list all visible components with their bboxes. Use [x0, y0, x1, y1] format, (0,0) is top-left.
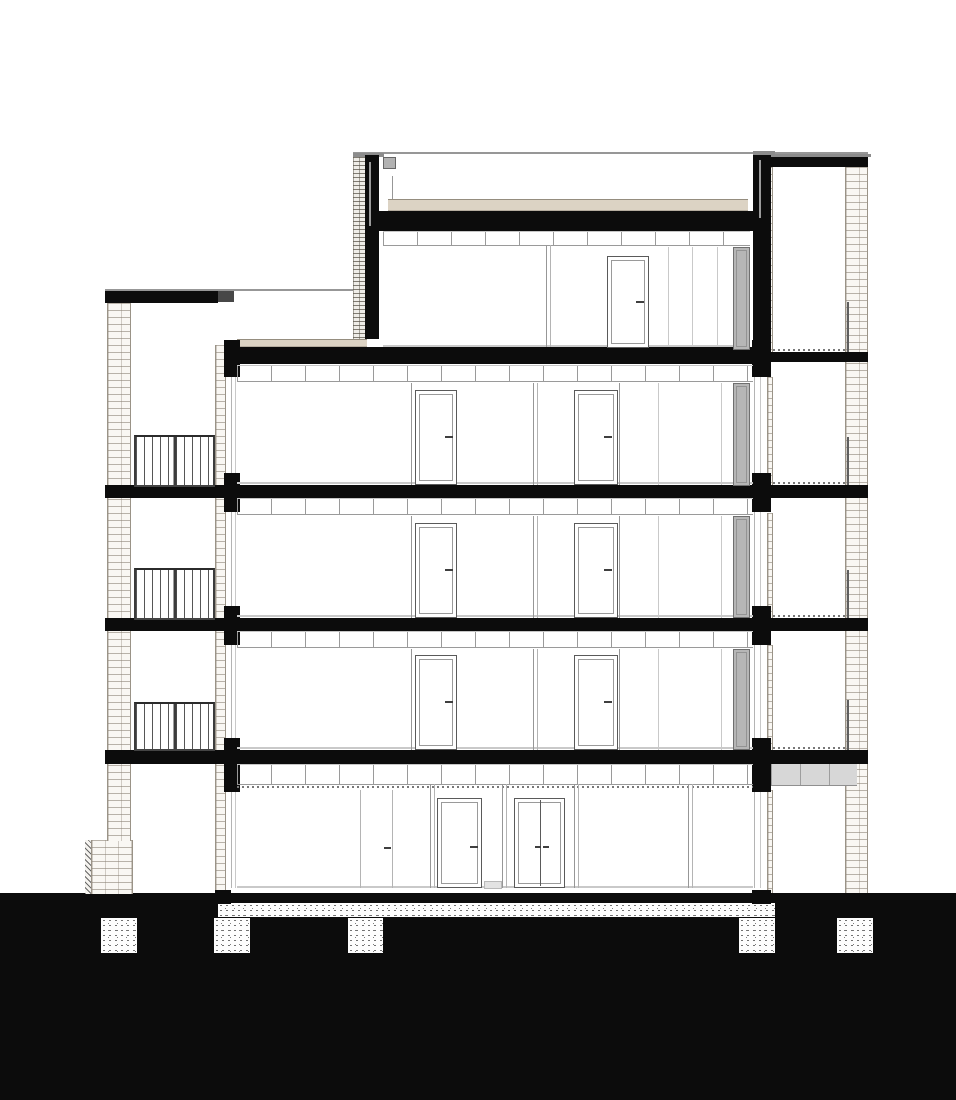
partition-l3-b: [537, 383, 538, 485]
floor-finish-level3: [237, 482, 753, 484]
terrace-deck-band: [237, 339, 367, 347]
entrance-mat: [484, 881, 502, 889]
right-inner-brick-3: [767, 513, 773, 618]
ground-ceiling-dotted-line: [237, 786, 753, 788]
partition-l1-b: [537, 649, 538, 750]
door-ground-single: [437, 798, 482, 888]
handle-l2-right: [604, 569, 612, 571]
loggia-door-l3: [733, 383, 750, 486]
loggia-dotted-1: [773, 747, 845, 749]
wall-line-l1-a: [411, 649, 412, 750]
partition-pent-b: [550, 245, 551, 347]
wall-line-ground-b: [434, 784, 435, 888]
partition-l2-a: [533, 516, 534, 618]
foundation-pad-2: [214, 918, 250, 953]
right-inner-brick-2: [767, 377, 773, 485]
handle-penthouse: [636, 301, 644, 303]
balcony-railing-level1: [134, 702, 215, 751]
penthouse-parapet-left: [365, 155, 379, 339]
wall-line-l2-b: [619, 516, 620, 618]
loggia-door-l2: [733, 516, 750, 618]
loggia-door-l1: [733, 649, 750, 750]
loggia-dotted-3: [773, 482, 845, 484]
glass-door-line-ground-a: [360, 790, 361, 888]
right-wall-base-stub: [752, 890, 771, 904]
partition-l2-b: [537, 516, 538, 618]
right-facade-beam-2: [752, 473, 771, 512]
right-inner-brick-4: [767, 645, 773, 750]
partition-pent-a: [546, 245, 547, 347]
partition-ground-1b: [506, 784, 507, 888]
loggia-door-penthouse: [733, 247, 750, 350]
elev-line-l2-b: [721, 516, 722, 618]
ceiling-band-level3: [237, 365, 753, 382]
foundation-pad-5: [837, 918, 873, 953]
loggia-railing-top: [847, 302, 849, 352]
elev-line-pent-c: [717, 247, 718, 347]
building-section-drawing: [0, 0, 956, 1100]
ground-floor-slab-band: [218, 903, 775, 917]
penthouse-roof-slab: [379, 211, 755, 231]
roof-drain-pipe-left: [369, 162, 371, 226]
partition-ground-2b: [578, 784, 579, 888]
handle-ground-glass: [384, 847, 391, 849]
loggia-railing-3: [847, 437, 849, 485]
right-inner-brick-5: [767, 790, 773, 893]
left-wing-junction-block: [218, 291, 234, 302]
handle-l1-left: [445, 701, 453, 703]
handle-l1-right: [604, 701, 612, 703]
partition-ground-3b: [692, 784, 693, 888]
handle-l3-right: [604, 436, 612, 438]
left-wall-base-stub: [215, 890, 231, 904]
partition-l1-a: [533, 649, 534, 750]
floor-slab-level1: [228, 750, 868, 764]
left-wing-roof-cap: [105, 291, 218, 303]
ceiling-band-level1: [237, 631, 753, 648]
elev-line-l1-a: [658, 649, 659, 750]
handle-ground-double-r: [543, 846, 549, 848]
floor-slab-level2: [228, 618, 868, 631]
penthouse-parapet-right: [753, 155, 771, 352]
penthouse-parapet-cap-right: [753, 151, 775, 155]
floor-finish-penthouse: [383, 345, 750, 347]
elev-line-l2-a: [658, 516, 659, 618]
floor-slab-level3: [228, 485, 868, 498]
wall-line-l1-b: [619, 649, 620, 750]
balcony-railing-level2: [134, 568, 215, 620]
partition-l3-a: [533, 383, 534, 485]
terrace-floor-slab: [228, 347, 753, 364]
wall-line-ground-a: [430, 784, 431, 888]
entrance-canopy: [771, 764, 857, 786]
partition-ground-3a: [688, 784, 689, 888]
ceiling-band-level2: [237, 498, 753, 515]
ceiling-band-penthouse: [383, 231, 750, 246]
loggia-railing-2: [847, 570, 849, 618]
wall-line-l3-b: [619, 383, 620, 485]
door-ground-double: [514, 798, 565, 888]
partition-ground-1a: [502, 784, 503, 888]
loggia-dotted-top: [773, 349, 845, 351]
roof-drain-pipe-right: [759, 160, 761, 218]
foundation-pad-4: [739, 918, 775, 953]
left-wing-roofline-elevation: [218, 289, 353, 291]
foundation-pad-1: [101, 918, 137, 953]
left-footing-brick: [91, 840, 133, 894]
elev-line-l1-b: [721, 649, 722, 750]
balcony-slab-level1: [105, 750, 228, 764]
wall-line-l3-a: [411, 383, 412, 485]
right-facade-beam-1: [752, 606, 771, 645]
partition-ground-2a: [574, 784, 575, 888]
roof-vent-line: [392, 176, 393, 199]
elev-line-pent-b: [692, 247, 693, 347]
handle-ground-single: [470, 846, 478, 848]
penthouse-parapet-brick-left: [353, 157, 365, 339]
floor-finish-level2: [237, 615, 753, 617]
loggia-railing-1: [847, 700, 849, 750]
elev-line-l3-b: [721, 383, 722, 485]
right-facade-beam-0: [752, 738, 771, 792]
glass-door-line-ground-b: [392, 790, 393, 888]
roof-drain-box: [383, 157, 396, 169]
elev-line-pent-a: [668, 247, 669, 347]
roof-insulation-band: [388, 199, 748, 211]
foundation-pad-3: [348, 918, 383, 953]
elev-line-l3-a: [658, 383, 659, 485]
handle-ground-double-l: [535, 846, 541, 848]
right-tower-terrace-slab: [765, 352, 868, 362]
ground-mass: [0, 893, 956, 1100]
right-tower-roof-slab: [771, 157, 868, 167]
floor-finish-level1: [237, 747, 753, 749]
right-facade-beam-3: [752, 340, 771, 377]
balcony-railing-level3: [134, 435, 215, 487]
wall-line-l2-a: [411, 516, 412, 618]
handle-l2-left: [445, 569, 453, 571]
loggia-dotted-2: [773, 615, 845, 617]
handle-l3-left: [445, 436, 453, 438]
ceiling-band-ground: [237, 764, 753, 785]
